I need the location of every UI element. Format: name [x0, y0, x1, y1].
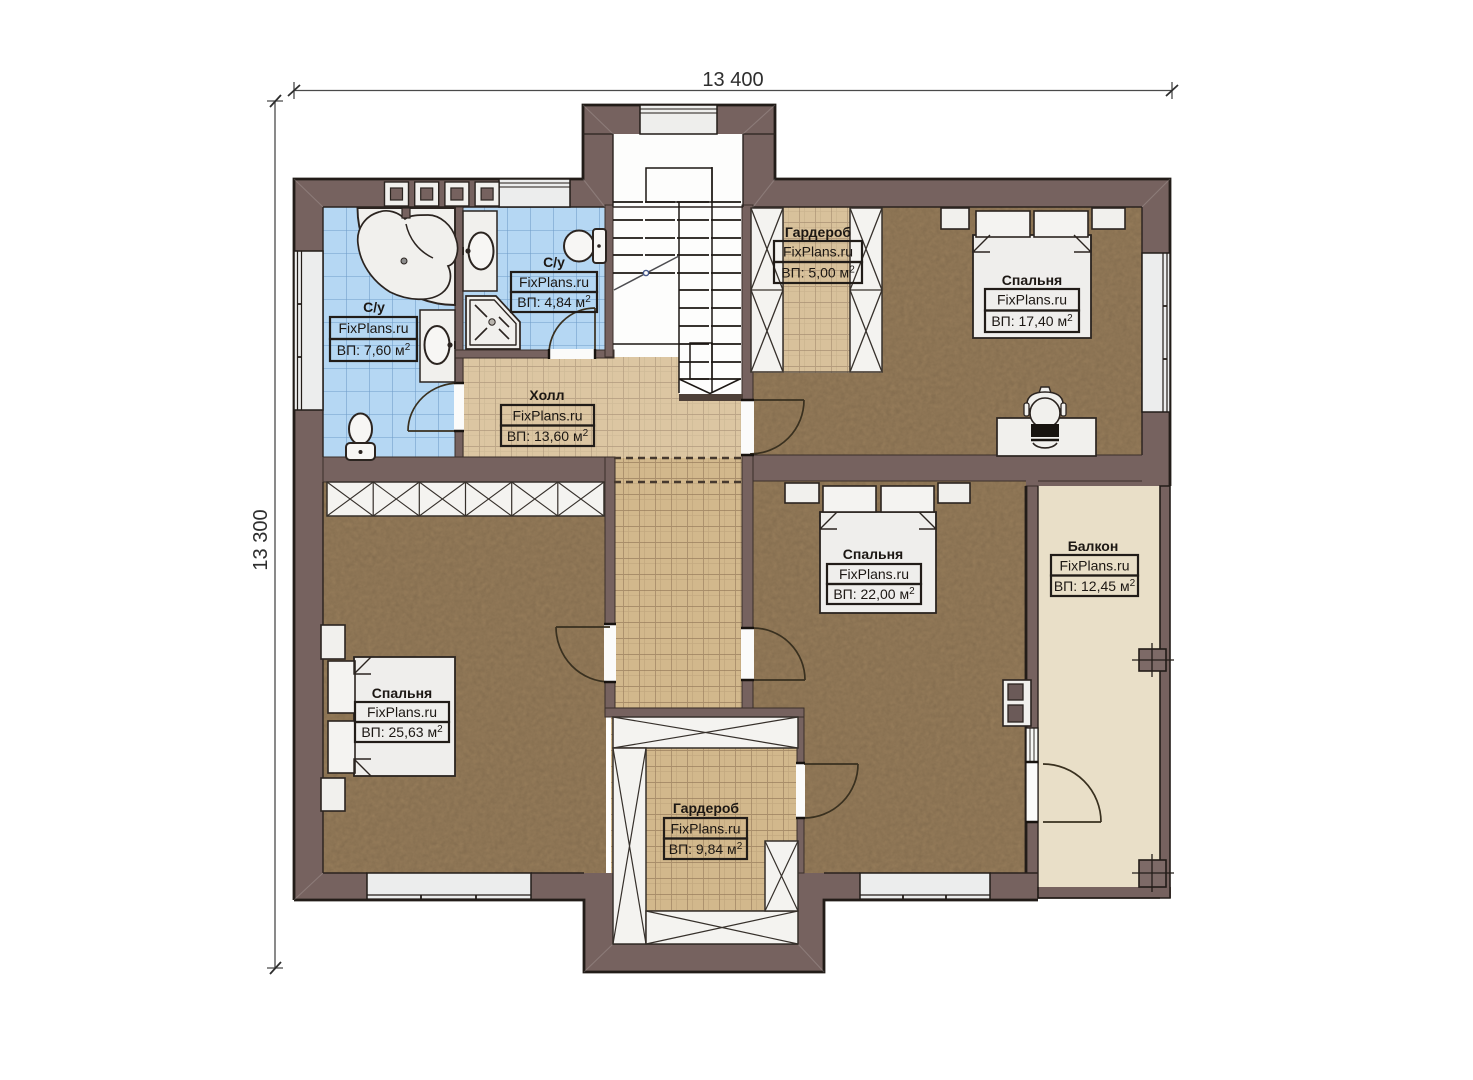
- svg-text:FixPlans.ru: FixPlans.ru: [338, 320, 408, 336]
- svg-text:ВП: 17,40 м2: ВП: 17,40 м2: [991, 313, 1073, 329]
- svg-text:ВП: 5,00 м2: ВП: 5,00 м2: [781, 265, 855, 281]
- svg-text:ВП: 7,60 м2: ВП: 7,60 м2: [337, 342, 411, 358]
- svg-text:13 300: 13 300: [250, 509, 272, 570]
- svg-text:ВП: 13,60 м2: ВП: 13,60 м2: [507, 428, 589, 444]
- svg-text:ВП: 22,00 м2: ВП: 22,00 м2: [833, 586, 915, 602]
- svg-text:FixPlans.ru: FixPlans.ru: [519, 274, 589, 290]
- svg-text:ВП: 25,63 м2: ВП: 25,63 м2: [361, 724, 443, 740]
- svg-text:ВП: 9,84 м2: ВП: 9,84 м2: [669, 841, 743, 857]
- svg-text:С/у: С/у: [543, 254, 565, 270]
- svg-text:Балкон: Балкон: [1068, 538, 1119, 554]
- svg-text:FixPlans.ru: FixPlans.ru: [839, 566, 909, 582]
- svg-text:FixPlans.ru: FixPlans.ru: [512, 408, 582, 424]
- svg-text:Спальня: Спальня: [372, 685, 432, 701]
- svg-text:ВП: 12,45 м2: ВП: 12,45 м2: [1054, 578, 1136, 594]
- svg-text:Гардероб: Гардероб: [785, 224, 852, 240]
- svg-text:FixPlans.ru: FixPlans.ru: [997, 292, 1067, 308]
- svg-text:FixPlans.ru: FixPlans.ru: [1059, 558, 1129, 574]
- svg-text:FixPlans.ru: FixPlans.ru: [670, 821, 740, 837]
- svg-text:Холл: Холл: [529, 387, 564, 403]
- svg-text:FixPlans.ru: FixPlans.ru: [783, 244, 853, 260]
- svg-text:Спальня: Спальня: [843, 546, 903, 562]
- svg-text:С/у: С/у: [363, 299, 385, 315]
- svg-text:13 400: 13 400: [702, 69, 763, 91]
- svg-text:ВП: 4,84 м2: ВП: 4,84 м2: [517, 294, 591, 310]
- svg-text:Гардероб: Гардероб: [673, 800, 740, 816]
- svg-text:FixPlans.ru: FixPlans.ru: [367, 704, 437, 720]
- svg-text:Спальня: Спальня: [1002, 272, 1062, 288]
